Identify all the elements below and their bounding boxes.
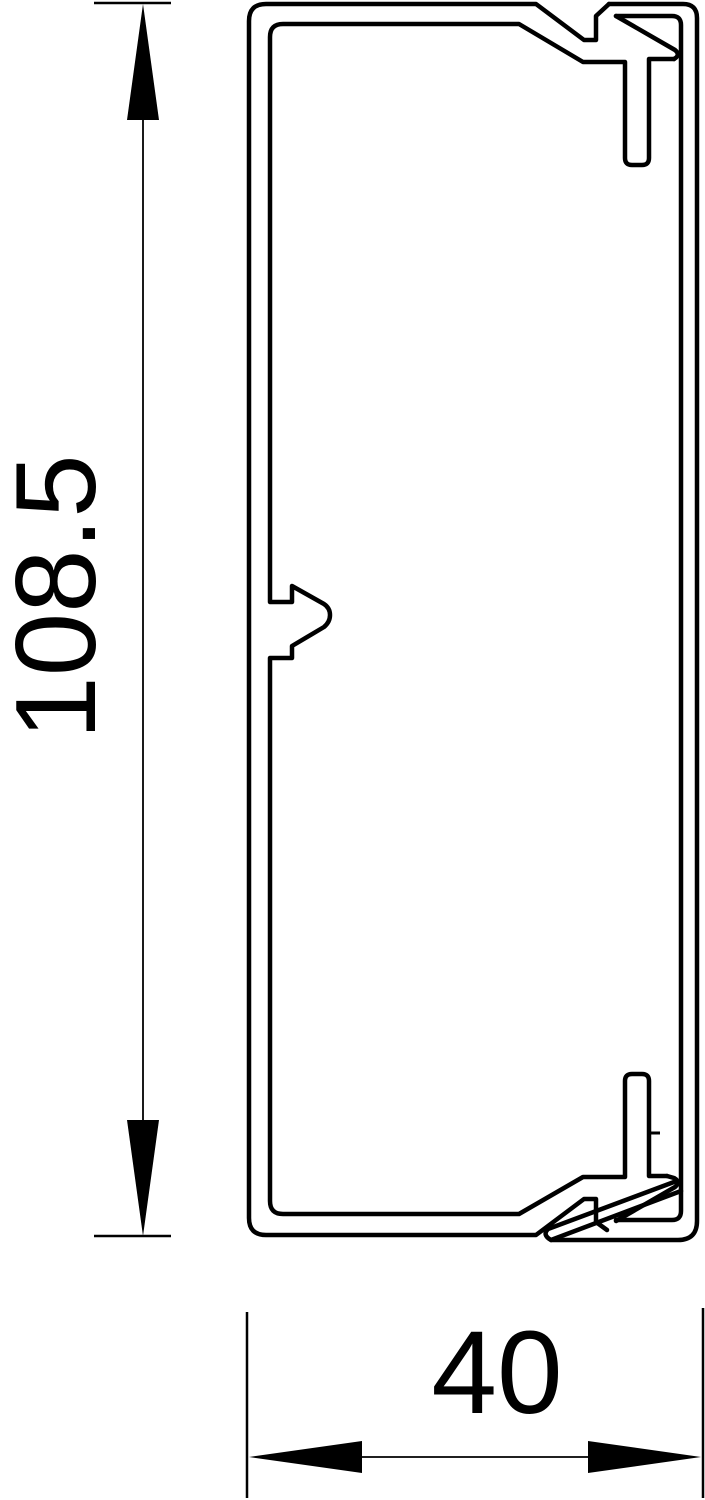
duct-wall-outer-outline	[249, 4, 609, 1235]
height-dimension-label: 108.5	[0, 454, 120, 739]
width-dimension-arrow-right	[588, 1441, 701, 1473]
width-dimension-arrow-left	[249, 1441, 362, 1473]
latch-top-diagonal	[616, 16, 678, 59]
cover-inner-line	[616, 16, 681, 1220]
cover-latch-line	[551, 1191, 681, 1240]
width-dimension-label: 40	[431, 1307, 562, 1439]
duct-wall-inner-contour	[270, 24, 674, 1214]
profile-cross-section-drawing: 108.5 40	[0, 0, 705, 1500]
cover-profile-outline	[546, 4, 697, 1240]
height-dimension-arrow-up	[127, 4, 159, 120]
height-dimension-arrow-down	[127, 1120, 159, 1236]
technical-drawing-canvas: 108.5 40	[0, 0, 705, 1500]
